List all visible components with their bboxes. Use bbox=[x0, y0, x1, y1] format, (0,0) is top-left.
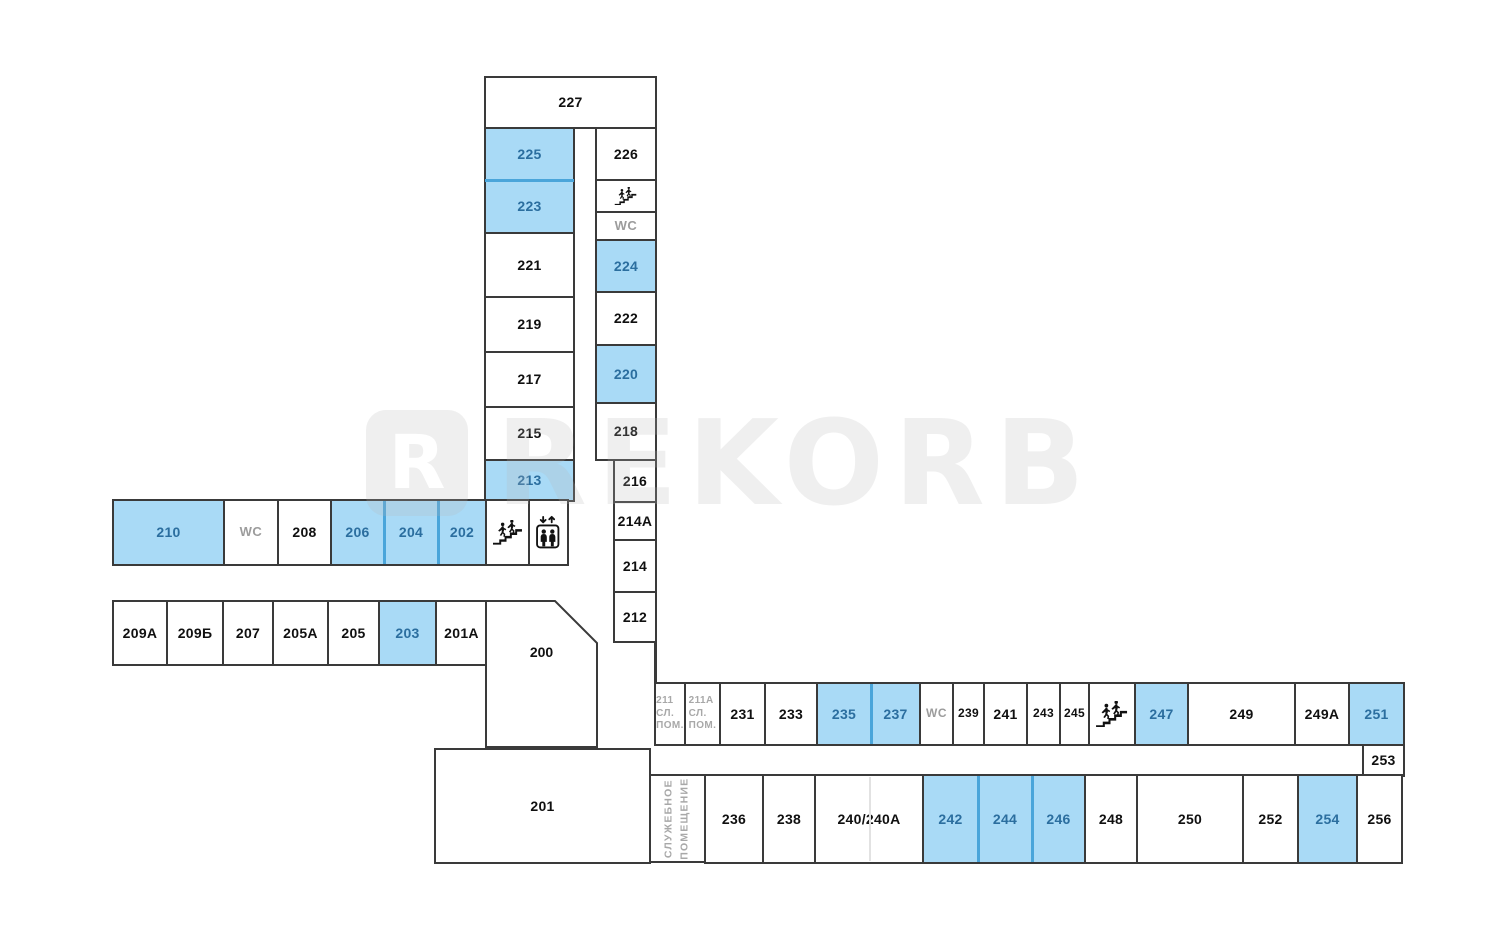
room-204[interactable]: 204 bbox=[384, 500, 438, 565]
room-label: 239 bbox=[958, 707, 979, 721]
room-label: 233 bbox=[779, 706, 803, 722]
stairs-cell-stairs-top bbox=[596, 180, 656, 212]
room-label: 216 bbox=[623, 473, 647, 489]
room-label: 209Б bbox=[178, 625, 213, 641]
room-221[interactable]: 221 bbox=[485, 233, 574, 297]
stairs-icon bbox=[614, 187, 637, 205]
room-label: 223 bbox=[517, 198, 541, 214]
room-divider bbox=[383, 501, 386, 564]
room-236[interactable]: 236 bbox=[705, 775, 763, 863]
room-256[interactable]: 256 bbox=[1357, 775, 1402, 863]
room-222[interactable]: 222 bbox=[596, 292, 656, 345]
room-214A[interactable]: 214A bbox=[614, 502, 656, 540]
room-label: 250 bbox=[1178, 811, 1202, 827]
room-label: 213 bbox=[517, 472, 541, 488]
room-219[interactable]: 219 bbox=[485, 297, 574, 352]
room-label: СЛУЖЕБНОЕПОМЕЩЕНИЕ bbox=[662, 777, 694, 859]
stairs-cell-stairs-mid bbox=[486, 500, 529, 565]
room-233[interactable]: 233 bbox=[765, 683, 817, 745]
wall-segment bbox=[654, 642, 657, 684]
watermark-text: REKORB bbox=[496, 394, 1095, 532]
room-divider bbox=[437, 501, 440, 564]
room-217[interactable]: 217 bbox=[485, 352, 574, 407]
room-divider-faint bbox=[869, 777, 871, 861]
elevator-icon bbox=[534, 512, 562, 552]
room-201[interactable]: 201 bbox=[435, 749, 650, 863]
room-215[interactable]: 215 bbox=[485, 407, 574, 460]
room-239[interactable]: 239 bbox=[953, 683, 984, 745]
room-label: 231 bbox=[730, 706, 754, 722]
room-200[interactable]: 200 bbox=[480, 595, 603, 753]
room-211: 211СЛ.ПОМ. bbox=[655, 683, 685, 745]
room-label: 214 bbox=[623, 558, 647, 574]
room-223[interactable]: 223 bbox=[485, 180, 574, 233]
room-label: WC bbox=[615, 219, 638, 234]
room-label: WC bbox=[926, 707, 947, 721]
room-label: 221 bbox=[517, 257, 541, 273]
room-label: 243 bbox=[1033, 707, 1054, 721]
room-label: 205A bbox=[283, 625, 318, 641]
room-210[interactable]: 210 bbox=[113, 500, 224, 565]
room-label: 220 bbox=[614, 366, 638, 382]
room-label: 238 bbox=[777, 811, 801, 827]
room-248[interactable]: 248 bbox=[1085, 775, 1137, 863]
room-209A[interactable]: 209A bbox=[113, 601, 167, 665]
room-label: 227 bbox=[558, 94, 582, 110]
room-label: 222 bbox=[614, 310, 638, 326]
room-label: 207 bbox=[236, 625, 260, 641]
room-label: 212 bbox=[623, 609, 647, 625]
room-label: 249A bbox=[1305, 706, 1340, 722]
room-242[interactable]: 242 bbox=[923, 775, 978, 863]
room-label: 206 bbox=[345, 524, 369, 540]
room-label: 215 bbox=[517, 425, 541, 441]
room-label: 248 bbox=[1099, 811, 1123, 827]
room-209B[interactable]: 209Б bbox=[167, 601, 223, 665]
room-service-room: СЛУЖЕБНОЕПОМЕЩЕНИЕ bbox=[650, 775, 705, 862]
room-label: 244 bbox=[993, 811, 1017, 827]
room-label: 219 bbox=[517, 316, 541, 332]
stairs-cell-stairs-right bbox=[1089, 683, 1135, 745]
room-divider bbox=[870, 684, 873, 744]
room-label: 214A bbox=[618, 513, 653, 529]
room-label: 211АСЛ.ПОМ. bbox=[689, 695, 717, 733]
room-213[interactable]: 213 bbox=[485, 460, 574, 501]
room-212[interactable]: 212 bbox=[614, 592, 656, 642]
floor-plan: R REKORB 227225223221219217215213226 WC2… bbox=[0, 0, 1500, 950]
room-250[interactable]: 250 bbox=[1137, 775, 1243, 863]
room-253[interactable]: 253 bbox=[1363, 745, 1404, 776]
room-202[interactable]: 202 bbox=[438, 500, 486, 565]
room-251[interactable]: 251 bbox=[1349, 683, 1404, 745]
room-205A[interactable]: 205A bbox=[273, 601, 328, 665]
room-235[interactable]: 235 bbox=[817, 683, 871, 745]
room-224[interactable]: 224 bbox=[596, 240, 656, 292]
room-label: 209A bbox=[123, 625, 158, 641]
room-216[interactable]: 216 bbox=[614, 460, 656, 502]
room-label: 249 bbox=[1229, 706, 1253, 722]
room-214[interactable]: 214 bbox=[614, 540, 656, 592]
room-label: 205 bbox=[341, 625, 365, 641]
room-label: 200 bbox=[480, 595, 603, 709]
room-wc-mid: WC bbox=[224, 500, 278, 565]
room-label: 217 bbox=[517, 371, 541, 387]
room-238[interactable]: 238 bbox=[763, 775, 815, 863]
room-label: 237 bbox=[883, 706, 907, 722]
room-label: 201 bbox=[530, 798, 554, 814]
room-label: 202 bbox=[450, 524, 474, 540]
room-226[interactable]: 226 bbox=[596, 128, 656, 180]
room-label: 201A bbox=[444, 625, 479, 641]
room-244[interactable]: 244 bbox=[978, 775, 1032, 863]
room-243[interactable]: 243 bbox=[1027, 683, 1060, 745]
room-254[interactable]: 254 bbox=[1298, 775, 1357, 863]
room-label: 256 bbox=[1367, 811, 1391, 827]
room-label: 210 bbox=[156, 524, 180, 540]
room-label: 226 bbox=[614, 146, 638, 162]
room-203[interactable]: 203 bbox=[379, 601, 436, 665]
room-label: 204 bbox=[399, 524, 423, 540]
room-wc-right: WC bbox=[920, 683, 953, 745]
elevator-cell bbox=[529, 500, 568, 565]
room-label: 246 bbox=[1046, 811, 1070, 827]
room-label: 218 bbox=[614, 423, 638, 439]
room-205[interactable]: 205 bbox=[328, 601, 379, 665]
room-245[interactable]: 245 bbox=[1060, 683, 1089, 745]
room-231[interactable]: 231 bbox=[720, 683, 765, 745]
room-208[interactable]: 208 bbox=[278, 500, 331, 565]
room-label: 208 bbox=[292, 524, 316, 540]
room-label: 253 bbox=[1371, 752, 1395, 768]
room-label: 211СЛ.ПОМ. bbox=[656, 695, 684, 733]
room-divider bbox=[977, 776, 980, 862]
stairs-icon bbox=[492, 520, 523, 544]
room-label: 252 bbox=[1258, 811, 1282, 827]
room-label: 235 bbox=[832, 706, 856, 722]
room-label: 245 bbox=[1064, 707, 1085, 721]
room-label: 254 bbox=[1315, 811, 1339, 827]
room-246[interactable]: 246 bbox=[1032, 775, 1085, 863]
room-label: 247 bbox=[1149, 706, 1173, 722]
room-225[interactable]: 225 bbox=[485, 128, 574, 180]
room-227[interactable]: 227 bbox=[485, 77, 656, 128]
room-252[interactable]: 252 bbox=[1243, 775, 1298, 863]
room-237[interactable]: 237 bbox=[871, 683, 920, 745]
room-divider bbox=[1031, 776, 1034, 862]
room-218[interactable]: 218 bbox=[596, 403, 656, 460]
room-label: 251 bbox=[1364, 706, 1388, 722]
room-207[interactable]: 207 bbox=[223, 601, 273, 665]
room-divider bbox=[485, 179, 574, 182]
room-206[interactable]: 206 bbox=[331, 500, 384, 565]
room-label: 225 bbox=[517, 146, 541, 162]
room-249[interactable]: 249 bbox=[1188, 683, 1295, 745]
room-label: 203 bbox=[395, 625, 419, 641]
room-wc-top: WC bbox=[596, 212, 656, 240]
room-label: 224 bbox=[614, 258, 638, 274]
room-label: 236 bbox=[722, 811, 746, 827]
room-241[interactable]: 241 bbox=[984, 683, 1027, 745]
room-220[interactable]: 220 bbox=[596, 345, 656, 403]
room-label: WC bbox=[240, 525, 263, 540]
room-249A[interactable]: 249A bbox=[1295, 683, 1349, 745]
room-label: 241 bbox=[993, 706, 1017, 722]
room-211A: 211АСЛ.ПОМ. bbox=[685, 683, 720, 745]
stairs-icon bbox=[1095, 701, 1128, 727]
room-label: 242 bbox=[938, 811, 962, 827]
room-247[interactable]: 247 bbox=[1135, 683, 1188, 745]
